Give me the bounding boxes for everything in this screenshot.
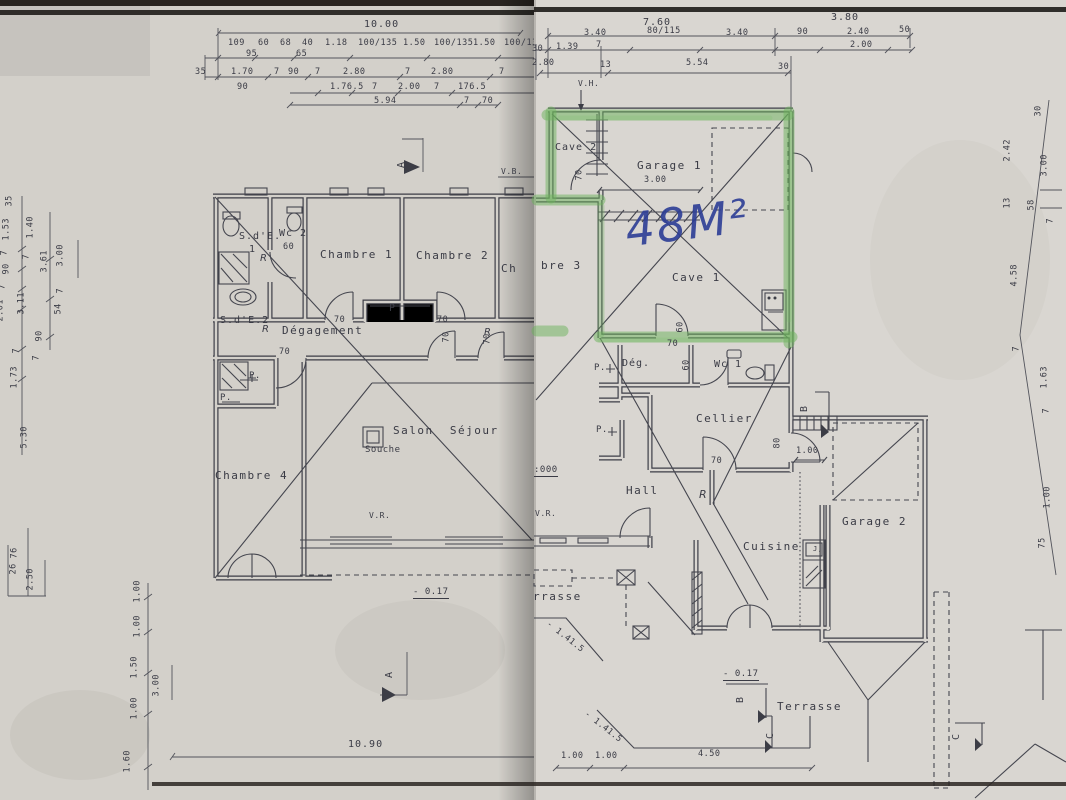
bottom-frame-line bbox=[152, 782, 1066, 786]
floorplan-linework bbox=[0, 0, 1066, 800]
floorplan-photo: 10.00 109 60 68 40 1.18 100/135 1.50 100… bbox=[0, 0, 1066, 800]
